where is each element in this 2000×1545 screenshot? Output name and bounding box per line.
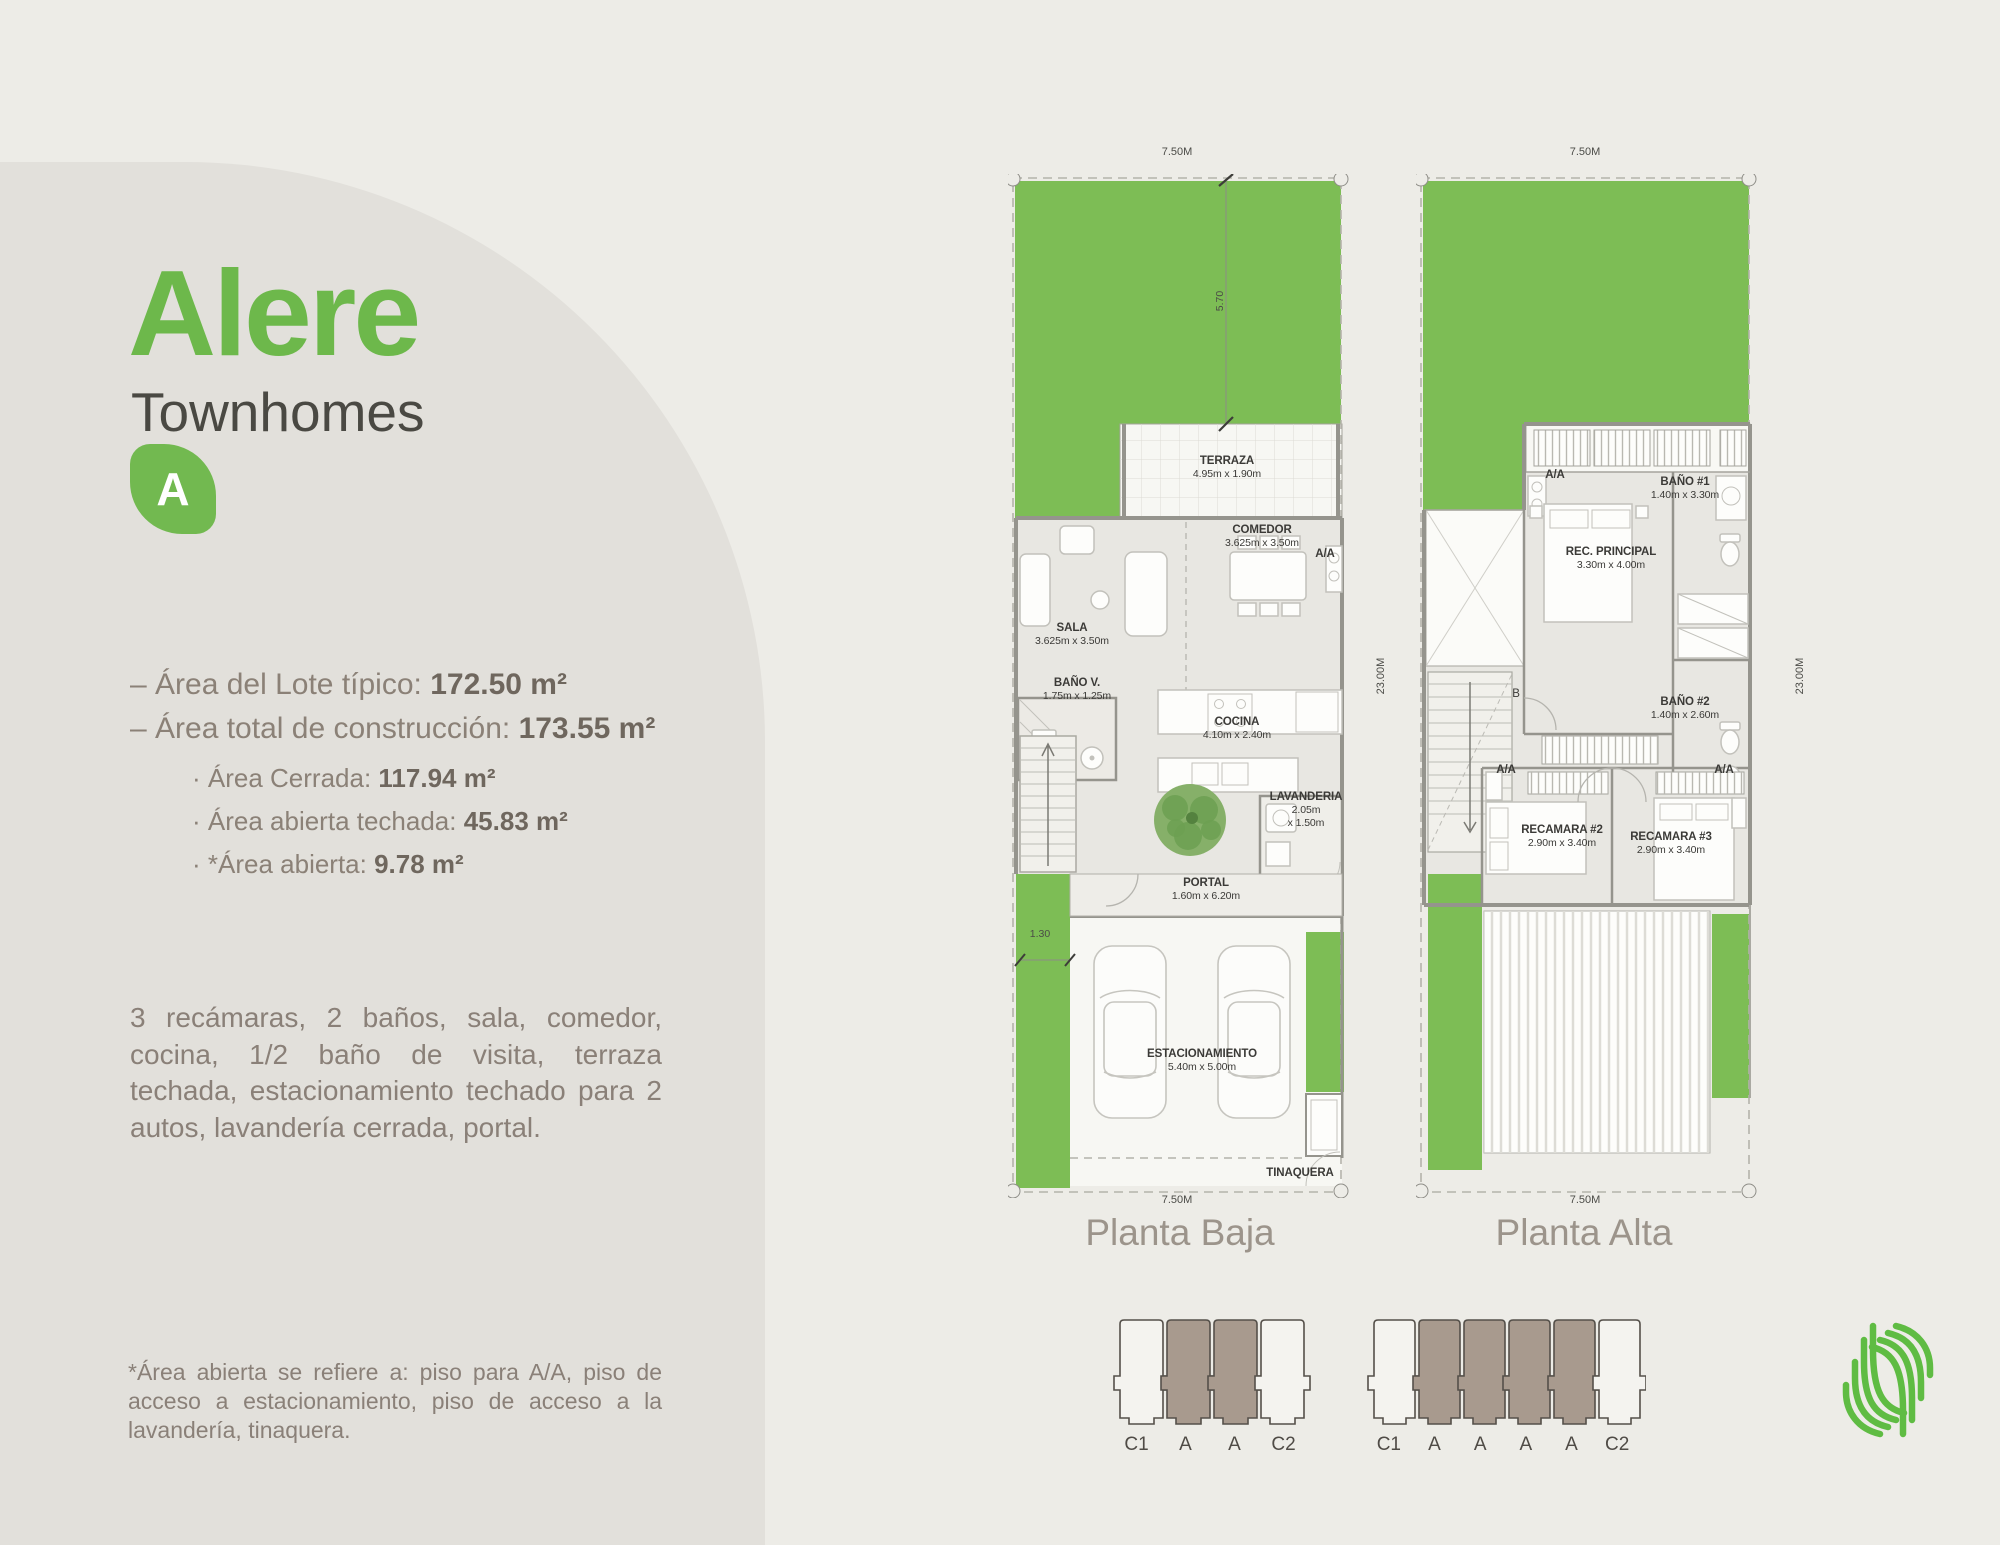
room-label-bano2: BAÑO #2 1.40m x 2.60m bbox=[1605, 696, 1765, 722]
spec-lot-value: 172.50 m² bbox=[430, 668, 567, 701]
room-label-bano1: BAÑO #1 1.40m x 3.30m bbox=[1605, 476, 1765, 502]
ac-label-pa-3: A/A bbox=[1704, 764, 1744, 777]
unit-row-labels-four: C1 A A C2 bbox=[1112, 1434, 1308, 1456]
unit-row-diagram-four bbox=[1112, 1318, 1312, 1430]
room-label-cocina: COCINA 4.10m x 2.40m bbox=[1157, 716, 1317, 742]
ac-label-pa-2: A/A bbox=[1486, 764, 1526, 777]
unit-row-labels-six: C1 A A A A C2 bbox=[1366, 1434, 1640, 1456]
pb-dim-side: 23.00M bbox=[1375, 636, 1387, 716]
room-label-sala: SALA 3.625m x 3.50m bbox=[992, 622, 1152, 648]
caption-planta-baja: Planta Baja bbox=[1030, 1212, 1330, 1254]
model-badge-letter: A bbox=[156, 462, 189, 516]
spec-bullet-covered-open-area: · Área abierta techada: 45.83 m² bbox=[192, 806, 568, 837]
pa-dim-side: 23.00M bbox=[1794, 636, 1806, 716]
brochure-page: Alere Townhomes A – Área del Lote típico… bbox=[0, 0, 2000, 1545]
room-label-estacionamiento: ESTACIONAMIENTO 5.40m x 5.00m bbox=[1122, 1048, 1282, 1074]
caption-planta-alta: Planta Alta bbox=[1434, 1212, 1734, 1254]
ac-label-pa-1: A/A bbox=[1535, 469, 1575, 482]
pb-dim-yard-depth: 5.70 bbox=[1214, 277, 1226, 325]
leaf-fingerprint-logo bbox=[1836, 1318, 1946, 1448]
pb-dim-entry-width: 1.30 bbox=[1016, 928, 1064, 940]
room-label-lavanderia: LAVANDERIA 2.05m x 1.50m bbox=[1226, 791, 1386, 830]
spec-total-value: 173.55 m² bbox=[519, 712, 656, 745]
unit-description: 3 recámaras, 2 baños, sala, comedor, coc… bbox=[130, 1000, 662, 1146]
pb-dim-top: 7.50M bbox=[1137, 146, 1217, 158]
room-label-bano-v: BAÑO V. 1.75m x 1.25m bbox=[997, 677, 1157, 703]
pb-dim-bottom: 7.50M bbox=[1137, 1194, 1217, 1206]
spec-bullet-closed-area: · Área Cerrada: 117.94 m² bbox=[192, 763, 496, 794]
spec-lot-area: – Área del Lote típico: 172.50 m² bbox=[130, 668, 567, 702]
pa-dim-top: 7.50M bbox=[1545, 146, 1625, 158]
pa-dim-bottom: 7.50M bbox=[1545, 1194, 1625, 1206]
unit-row-diagram-six bbox=[1366, 1318, 1646, 1430]
room-label-comedor: COMEDOR 3.625m x 3.50m bbox=[1182, 524, 1342, 550]
stair-label-b: B bbox=[1496, 688, 1536, 701]
ac-label-pb: A/A bbox=[1305, 548, 1345, 561]
brand-title: Alere bbox=[128, 252, 418, 374]
room-label-terraza: TERRAZA 4.95m x 1.90m bbox=[1147, 455, 1307, 481]
brand-subtitle: Townhomes bbox=[131, 380, 424, 444]
spec-total-construction: – Área total de construcción: 173.55 m² bbox=[130, 712, 655, 746]
open-area-footnote: *Área abierta se refiere a: piso para A/… bbox=[128, 1358, 662, 1445]
spec-lot-label: – Área del Lote típico: bbox=[130, 668, 430, 701]
room-label-tinaquera: TINAQUERA bbox=[1220, 1167, 1380, 1180]
planta-alta-drawing bbox=[1416, 174, 1760, 1198]
spec-total-label: – Área total de construcción: bbox=[130, 712, 519, 745]
room-label-recamara3: RECAMARA #3 2.90m x 3.40m bbox=[1591, 831, 1751, 857]
room-label-portal: PORTAL 1.60m x 6.20m bbox=[1126, 877, 1286, 903]
spec-bullet-open-area: · *Área abierta: 9.78 m² bbox=[192, 849, 464, 880]
room-label-rec-principal: REC. PRINCIPAL 3.30m x 4.00m bbox=[1531, 546, 1691, 572]
